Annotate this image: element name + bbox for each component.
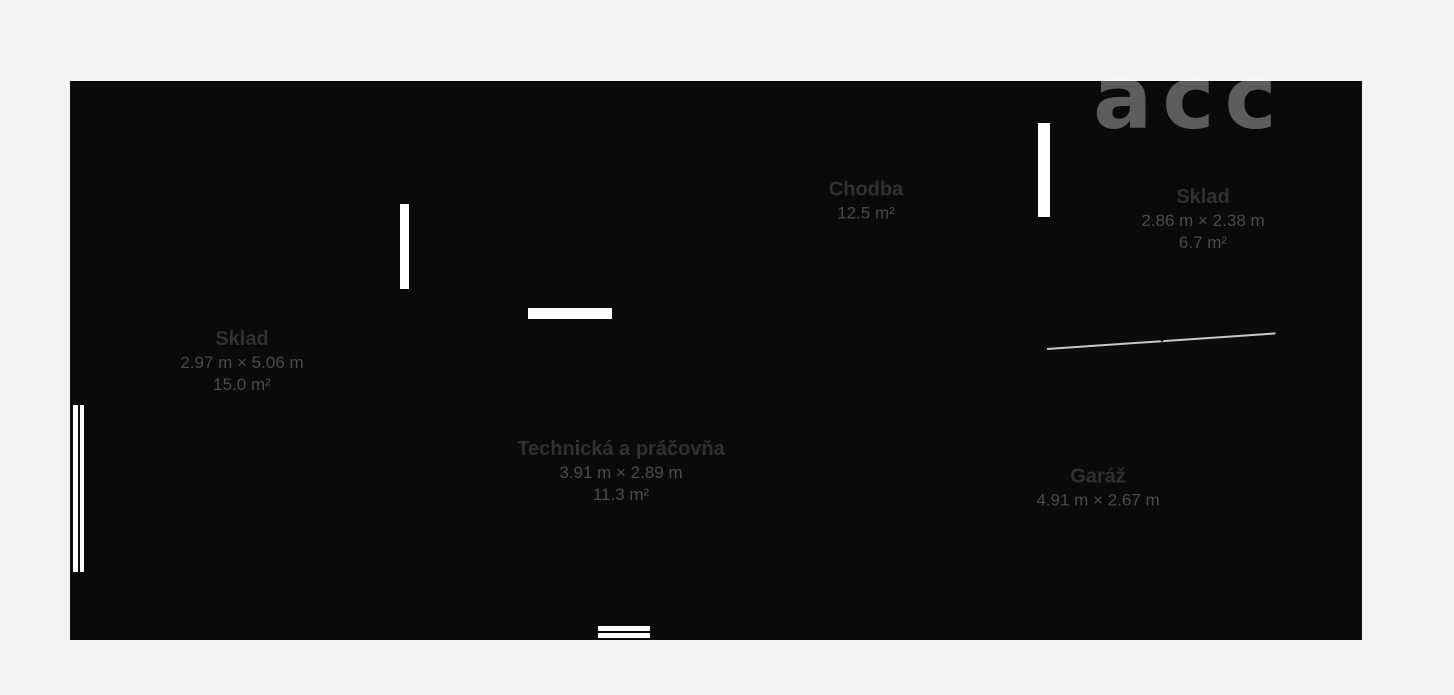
room-name: Garáž bbox=[1036, 465, 1159, 490]
room-area: 11.3 m² bbox=[517, 484, 725, 506]
room-name: Technická a práčovňa bbox=[517, 437, 725, 462]
interior-wall-garaz-top bbox=[843, 342, 1047, 358]
measure-arrow-down-icon bbox=[608, 614, 624, 622]
room-name: Sklad bbox=[180, 327, 303, 352]
measure-arrow-down-icon bbox=[235, 614, 251, 622]
window-icon-left bbox=[73, 405, 84, 572]
measure-arrow-up-icon bbox=[235, 99, 251, 107]
measure-arrow-down-icon bbox=[1154, 614, 1170, 622]
room-area: 15.0 m² bbox=[180, 374, 303, 396]
room-label-technicka: Technická a práčovňa 3.91 m × 2.89 m 11.… bbox=[517, 437, 725, 506]
measure-arrow-right-icon bbox=[1337, 207, 1345, 223]
measure-arrow-left-icon bbox=[88, 353, 96, 369]
interior-wall-technicka-right bbox=[818, 305, 843, 622]
room-name: Sklad bbox=[1141, 185, 1264, 210]
measure-arrow-up-icon bbox=[609, 323, 625, 331]
interior-wall-chodba-bottom bbox=[397, 305, 843, 322]
room-area: 6.7 m² bbox=[1141, 232, 1264, 254]
measure-arrow-left-icon bbox=[413, 464, 421, 480]
measure-arrow-left-icon bbox=[1056, 207, 1064, 223]
door-opening-left-wall bbox=[400, 204, 409, 289]
interior-wall-pier bbox=[412, 185, 423, 203]
window-icon-bottom bbox=[598, 626, 650, 638]
room-dimensions: 2.97 m × 5.06 m bbox=[180, 352, 303, 374]
measure-arrow-up-icon bbox=[1154, 346, 1170, 354]
measure-arrow-down-icon bbox=[1154, 334, 1170, 342]
room-label-sklad-left: Sklad 2.97 m × 5.06 m 15.0 m² bbox=[180, 327, 303, 396]
room-name: Chodba bbox=[829, 178, 903, 203]
room-label-chodba: Chodba 12.5 m² bbox=[829, 178, 903, 225]
measure-arrow-left-icon bbox=[844, 481, 852, 497]
door-opening-chodba-sklad bbox=[1038, 123, 1050, 217]
measure-arrow-right-icon bbox=[1337, 481, 1345, 497]
door-opening-technicka-top bbox=[528, 308, 612, 319]
measure-arrow-right-icon bbox=[810, 464, 818, 480]
room-label-sklad-right: Sklad 2.86 m × 2.38 m 6.7 m² bbox=[1141, 185, 1264, 254]
room-dimensions: 3.91 m × 2.89 m bbox=[517, 462, 725, 484]
room-dimensions: 2.86 m × 2.38 m bbox=[1141, 210, 1264, 232]
measure-arrow-up-icon bbox=[1150, 99, 1166, 107]
floor-plan: Sklad 2.97 m × 5.06 m 15.0 m² Chodba 12.… bbox=[0, 0, 1454, 695]
measure-arrow-right-icon bbox=[389, 353, 397, 369]
interior-wall-left-vertical bbox=[397, 98, 412, 622]
room-dimensions: 4.91 m × 2.67 m bbox=[1036, 490, 1159, 512]
room-area: 12.5 m² bbox=[829, 203, 903, 225]
room-label-garaz: Garáž 4.91 m × 2.67 m bbox=[1036, 465, 1159, 512]
interior-wall-sklad-right-bottom-stub bbox=[1275, 331, 1345, 351]
